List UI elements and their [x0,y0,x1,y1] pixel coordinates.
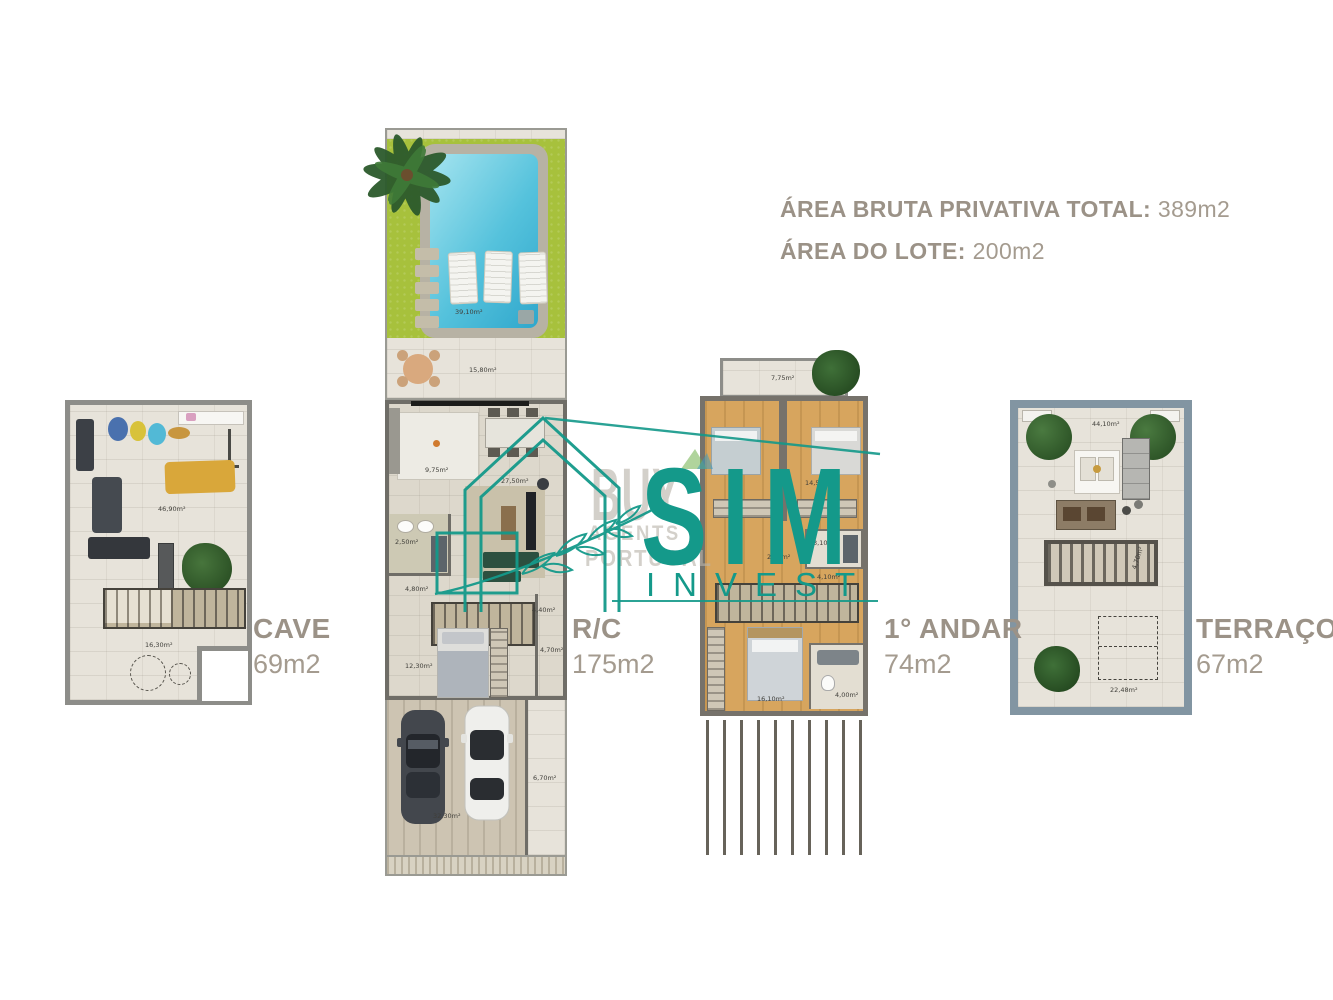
side-table [1122,506,1131,515]
bean-bag-yellow [130,421,146,441]
bush-icon [1026,414,1072,460]
cave-notch [197,646,248,701]
area-bruta-value: 389m2 [1158,196,1230,222]
dumbbell-rack [76,419,94,471]
car-white [461,704,513,822]
pergola-slats [706,720,862,855]
room-label-andar-master: 16,10m² [757,695,785,703]
outdoor-sofa [1122,438,1150,500]
master-bed [747,627,803,701]
driveway-edge [385,855,567,876]
rc-garden: 39,10m² 15,80m² [385,128,567,400]
cave-area: 69m2 [253,650,331,680]
tank-circle-large [130,655,166,691]
toilet [821,675,835,691]
master-wardrobe [707,627,725,711]
daybed [1056,500,1116,530]
bean-bag-blue [108,417,128,441]
pool-step [518,310,534,324]
room-label-rc-side: 4,70m² [540,646,563,654]
area-bruta-line: ÁREA BRUTA PRIVATIVA TOTAL: 389m2 [780,196,1230,223]
stepping-stones [415,248,441,340]
chair [397,376,408,387]
room-label-cave-lower: 16,30m² [145,641,173,649]
plan-caption-terraco: TERRAÇO 67m2 [1196,614,1333,679]
dashed-area [1098,616,1158,680]
rc-area: 175m2 [572,650,655,680]
plant-icon [182,543,232,593]
kettle [1048,480,1056,488]
sun-lounger [448,251,479,304]
cave-name: CAVE [253,614,331,645]
room-label-andar-wc2: 4,00m² [835,691,858,699]
cave-stairs-light [105,590,171,623]
floorplan-sheet: ÁREA BRUTA PRIVATIVA TOTAL: 389m2 ÁREA D… [0,0,1333,1000]
palm-tree-icon [349,120,464,275]
coffee-table [1074,450,1120,494]
andar-name: 1° ANDAR [884,614,1023,645]
invest-watermark-text: INVEST [646,566,873,604]
plan-cave: 46,90m² 16,30m² [65,400,252,705]
room-label-rc-hall: 4,80m² [405,585,428,593]
room-label-rc-bedroom: 12,30m² [405,662,433,670]
bean-bag-cyan [148,423,166,445]
chair [397,350,408,361]
room-label-andar-balcony: 7,75m² [771,374,794,382]
plan-caption-rc: R/C 175m2 [572,614,655,679]
appliance-column [389,408,400,474]
terraco-name: TERRAÇO [1196,614,1333,645]
plan-terraco: 44,10m² 4,70m² 22,48m² [1010,400,1192,715]
weight-bench [88,537,150,559]
room-label-rc-garage: 32,30m² [433,812,461,820]
yoga-mat [164,460,235,494]
rc-bed [437,628,489,698]
area-bruta-label: ÁREA BRUTA PRIVATIVA TOTAL: [780,196,1151,222]
area-lote-value: 200m2 [973,238,1045,264]
rc-garage: 32,30m² 6,70m² [385,700,567,855]
car-dark [397,708,449,826]
pink-items [186,413,196,421]
room-label-rc-wc: 2,50m² [395,538,418,546]
side-table [1134,500,1143,509]
sun-lounger [518,252,548,305]
rc-name: R/C [572,614,655,645]
room-label-rc-garden: 39,10m² [455,308,483,316]
bathtub [817,650,859,665]
room-label-terraco-open: 22,48m² [1110,686,1138,694]
exercise-bench [92,477,122,533]
chair [429,376,440,387]
chair [429,350,440,361]
sink [397,520,414,533]
area-lote-line: ÁREA DO LOTE: 200m2 [780,238,1045,265]
plan-caption-andar: 1° ANDAR 74m2 [884,614,1023,679]
terraco-area: 67m2 [1196,650,1333,680]
room-label-cave-main: 46,90m² [158,505,186,513]
andar-area: 74m2 [884,650,1023,680]
rc-patio: 15,80m² [387,338,565,398]
room-label-rc-patio: 15,80m² [469,366,497,374]
room-label-terraco-deck: 44,10m² [1092,420,1120,428]
terrace-plant-icon [1034,646,1080,692]
sun-lounger [483,251,513,304]
plan-caption-cave: CAVE 69m2 [253,614,331,679]
andar-wc2: 4,00m² [809,643,863,709]
bean-bag-tan [168,427,190,439]
rc-closet [490,628,508,698]
tank-circle-small [169,663,191,685]
area-lote-label: ÁREA DO LOTE: [780,238,966,264]
room-label-rc-path: 6,70m² [533,774,556,782]
balcony-plant-icon [812,350,860,396]
